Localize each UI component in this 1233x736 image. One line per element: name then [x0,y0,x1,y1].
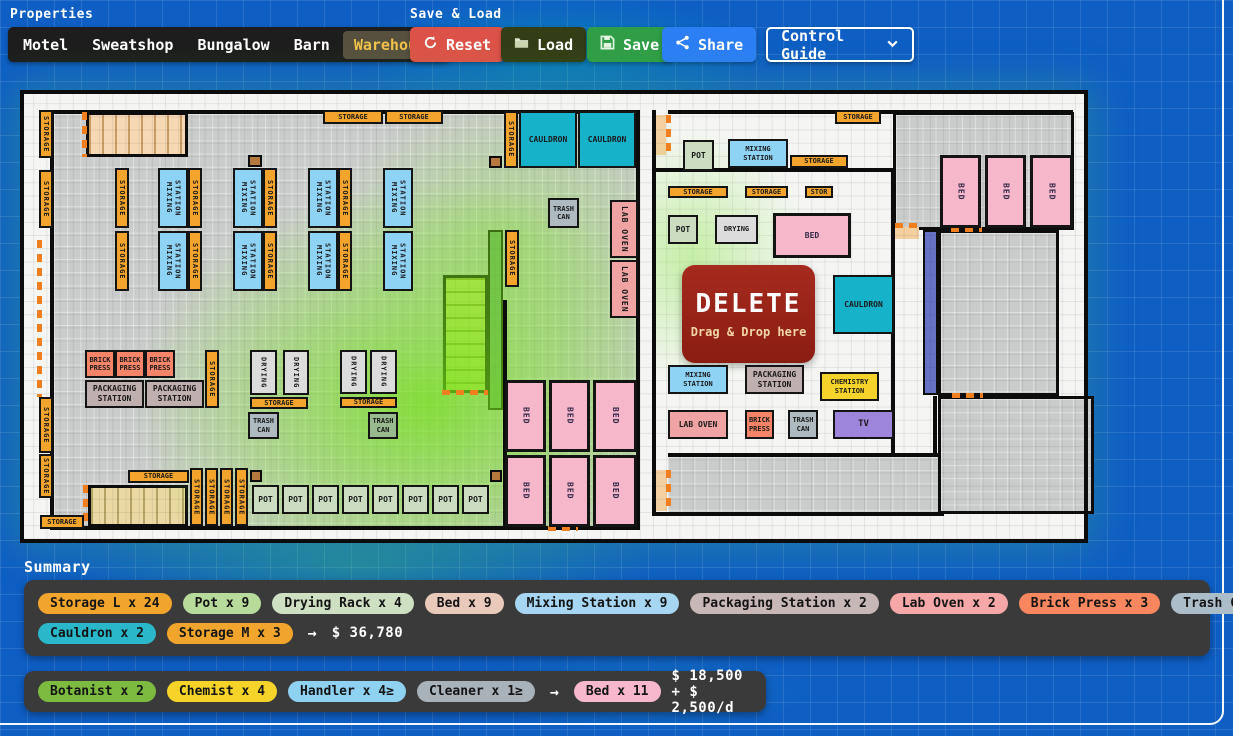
summary-badge: Botanist x 2 [38,681,156,702]
total-cost: $ 36,780 [332,625,403,641]
item-label: STORAGE [42,407,50,444]
share-button[interactable]: Share [662,27,756,62]
item-label: STORAGE [47,518,77,526]
item-label: STORAGE [42,116,50,153]
item-label: POT [676,225,690,235]
bed-item[interactable]: BED [773,213,851,258]
storage-item[interactable]: STORAGE [250,397,308,409]
pot-item[interactable]: POT [462,485,489,514]
item-label: LAB OVEN [619,266,629,313]
door-marker [82,112,87,157]
item-label: BED [565,407,575,424]
item-label: BRICK PRESS [749,416,770,433]
storage-item[interactable]: STORAGE [235,468,248,526]
summary-badge: Pot x 9 [183,593,262,614]
summary-badge: Brick Press x 3 [1019,593,1160,614]
item-label: DRYING [259,357,267,388]
bed-item[interactable]: BED [505,380,546,452]
item-label: MIXING STATION [315,180,332,217]
summary-badge: Mixing Station x 9 [515,593,680,614]
divider-strip [488,230,503,410]
storage-item[interactable]: STORAGE [745,186,788,198]
bed-item[interactable]: BED [505,455,546,527]
item-label: STORAGE [191,243,199,280]
door-marker [895,223,919,228]
item-label: STORAGE [508,240,516,277]
item-label: CAULDRON [588,135,627,145]
mixing-station-item[interactable]: MIXING STATION [308,231,338,291]
summary-badge: Lab Oven x 2 [890,593,1008,614]
delete-zone-subtitle: Drag & Drop here [691,325,807,339]
tab-motel[interactable]: Motel [12,31,79,59]
trash-can-item[interactable]: TRASH CAN [368,412,398,439]
item-label: BED [610,407,620,424]
brick-press-item[interactable]: BRICK PRESS [745,410,774,439]
item-label: PACKAGING STATION [93,384,136,403]
room-floor [938,230,1059,396]
save-label: Save [623,36,659,54]
item-label: MIXING STATION [315,243,332,280]
item-label: POT [408,495,422,505]
item-label: STORAGE [354,398,384,406]
load-button[interactable]: Load [501,27,586,62]
bed-item[interactable]: BED [549,455,590,527]
pot-item[interactable]: POT [312,485,339,514]
item-label: STORAGE [42,458,50,495]
item-label: MIXING STATION [390,243,407,280]
item-label: MIXING STATION [240,180,257,217]
door-marker [666,470,671,511]
storage-item[interactable]: STORAGE [115,231,129,291]
item-label: STORAGE [208,361,216,398]
stairs [88,485,188,527]
crate [490,470,502,482]
item-label: CAULDRON [844,300,883,310]
property-tabs: MotelSweatshopBungalowBarnWarehouse [8,27,450,62]
mixing-station-item[interactable]: MIXING STATION [728,139,788,168]
item-label: LAB OVEN [619,206,629,253]
item-label: BRICK PRESS [89,356,110,373]
bed-item[interactable]: BED [1030,155,1073,228]
storage-item[interactable]: STORAGE [188,168,202,228]
item-label: BRICK PRESS [149,356,170,373]
storage-item[interactable]: STORAGE [505,230,519,287]
item-label: STORAGE [237,479,245,516]
delete-drop-zone[interactable]: DELETE Drag & Drop here [682,265,815,363]
bed-item[interactable]: BED [985,155,1026,228]
item-label: POT [438,495,452,505]
item-label: BED [956,183,966,200]
save-button[interactable]: Save [587,27,672,62]
item-label: TRASH CAN [553,205,574,222]
item-label: POT [468,495,482,505]
floor-plan[interactable]: DELETE Drag & Drop here STORAGESTORAGEST… [20,90,1088,543]
storage-item[interactable]: STORAGE [220,468,233,526]
storage-item[interactable]: STORAGE [338,231,352,291]
summary-staff-row: Botanist x 2Chemist x 4Handler x 4≥Clean… [38,668,752,716]
drying-rack-item[interactable]: DRYING [283,350,309,395]
storage-item[interactable]: STORAGE [263,168,277,228]
mixing-station-item[interactable]: MIXING STATION [668,365,728,394]
crate [489,156,502,168]
item-label: STORAGE [341,180,349,217]
tab-sweatshop[interactable]: Sweatshop [81,31,184,59]
storage-item[interactable]: STORAGE [340,397,397,408]
door-marker [37,240,42,397]
pot-item[interactable]: POT [282,485,309,514]
tab-bungalow[interactable]: Bungalow [186,31,280,59]
item-label: STORAGE [222,479,230,516]
storage-item[interactable]: STORAGE [39,454,53,498]
item-label: DRYING [724,225,749,233]
chevron-down-icon [886,36,899,54]
pot-item[interactable]: POT [402,485,429,514]
bed-item[interactable]: BED [549,380,590,452]
item-label: STORAGE [399,113,429,121]
item-label: STORAGE [338,113,368,121]
mixing-station-item[interactable]: MIXING STATION [158,231,188,291]
item-label: DRYING [349,356,357,387]
drying-rack-item[interactable]: DRYING [715,215,758,244]
item-label: STORAGE [266,243,274,280]
trash-can-item[interactable]: TRASH CAN [548,198,579,228]
app-root: Properties Save & Load MotelSweatshopBun… [0,0,1233,736]
arrow-icon: → [304,624,321,642]
item-label: TRASH CAN [792,416,813,433]
save-icon [600,35,615,54]
item-label: BRICK PRESS [119,356,140,373]
storage-item[interactable]: STORAGE [39,110,53,158]
item-label: STORAGE [752,188,782,196]
bed-item[interactable]: BED [593,380,637,452]
item-label: POT [691,151,705,161]
storage-item[interactable]: STORAGE [338,168,352,228]
trash-can-item[interactable]: TRASH CAN [788,410,818,439]
storage-item[interactable]: STORAGE [40,515,84,529]
load-label: Load [537,36,573,54]
wall [933,396,937,457]
item-label: CHEMISTRY STATION [831,378,869,395]
summary-badge: Storage L x 24 [38,593,172,614]
item-label: BED [805,231,819,241]
storage-item[interactable]: STORAGE [205,350,219,408]
reset-label: Reset [446,36,491,54]
cauldron-item[interactable]: CAULDRON [833,275,894,334]
item-label: LAB OVEN [679,420,718,430]
storage-item[interactable]: STORAGE [385,110,443,124]
storage-item[interactable]: STORAGE [188,231,202,291]
summary-items-panel: Storage L x 24Pot x 9Drying Rack x 4Bed … [24,580,1210,656]
item-label: POT [378,495,392,505]
summary-badge: Chemist x 4 [167,681,277,702]
item-label: TRASH CAN [372,417,393,434]
door-marker [442,390,488,395]
crate [250,470,262,482]
item-label: STOR [811,188,828,196]
storage-item[interactable]: STORAGE [835,110,881,124]
summary-badge: Storage M x 3 [167,623,293,644]
pot-item[interactable]: POT [342,485,369,514]
divider-strip [923,230,938,395]
pot-item[interactable]: POT [372,485,399,514]
storage-item[interactable]: STORAGE [115,168,129,228]
drying-rack-item[interactable]: DRYING [250,350,277,395]
storage-item[interactable]: STORAGE [205,468,218,526]
drying-rack-item[interactable]: DRYING [340,350,367,394]
bed-item[interactable]: BED [593,455,637,527]
wall [652,512,944,516]
item-label: STORAGE [843,113,873,121]
share-label: Share [698,36,743,54]
mixing-station-item[interactable]: MIXING STATION [233,231,263,291]
reset-icon [423,35,438,54]
save-load-label: Save & Load [410,7,502,22]
summary-badge: Bed x 9 [425,593,504,614]
door-marker [952,393,983,398]
control-guide-dropdown[interactable]: Control Guide [766,27,914,62]
item-label: STORAGE [118,180,126,217]
item-label: STORAGE [144,472,174,480]
packaging-station-item[interactable]: PACKAGING STATION [85,380,144,408]
item-label: CAULDRON [529,135,568,145]
item-label: DRYING [292,357,300,388]
pot-item[interactable]: POT [668,215,698,244]
item-label: STORAGE [683,188,713,196]
pot-item[interactable]: POT [432,485,459,514]
storage-item[interactable]: STORAGE [504,111,518,168]
folder-icon [514,35,529,54]
door-marker [666,115,671,155]
brick-press-item[interactable]: BRICK PRESS [115,350,145,378]
item-label: STORAGE [118,243,126,280]
item-label: BED [565,482,575,499]
item-label: MIXING STATION [165,243,182,280]
tab-barn[interactable]: Barn [283,31,341,59]
summary-items-row1: Storage L x 24Pot x 9Drying Rack x 4Bed … [38,593,1196,614]
storage-item[interactable]: STORAGE [128,470,189,483]
cauldron-item[interactable]: CAULDRON [519,111,577,168]
item-label: TV [858,419,869,430]
storage-item[interactable]: STORAGE [39,397,53,453]
summary-badge: Trash Can x 3 [1171,593,1233,614]
delete-zone-title: DELETE [696,289,802,319]
summary-title: Summary [24,558,91,576]
lab-oven-item[interactable]: LAB OVEN [610,260,638,318]
item-label: STORAGE [264,399,294,407]
summary-staff-panel: Botanist x 2Chemist x 4Handler x 4≥Clean… [24,671,766,712]
share-icon [675,35,690,54]
mixing-station-item[interactable]: MIXING STATION [233,168,263,228]
mixing-station-item[interactable]: MIXING STATION [383,168,413,228]
item-label: DRYING [379,356,387,387]
staff-cost: $ 18,500 + $ 2,500/d [672,668,752,716]
storage-item[interactable]: STORAGE [190,468,203,526]
storage-item[interactable]: STORAGE [263,231,277,291]
packaging-station-item[interactable]: PACKAGING STATION [745,365,804,394]
reset-button[interactable]: Reset [410,27,504,62]
item-label: MIXING STATION [240,243,257,280]
packaging-station-item[interactable]: PACKAGING STATION [145,380,204,408]
tv-item[interactable]: TV [833,410,894,439]
lab-oven-item[interactable]: LAB OVEN [610,200,638,258]
mixing-station-item[interactable]: MIXING STATION [158,168,188,228]
summary-badge: Cauldron x 2 [38,623,156,644]
stairs [86,112,188,157]
room-floor [938,396,1094,514]
item-label: MIXING STATION [743,145,773,162]
item-label: BED [521,482,531,499]
item-label: TRASH CAN [253,417,274,434]
lab-oven-item[interactable]: LAB OVEN [668,410,728,439]
arrow-icon: → [546,683,563,701]
storage-item[interactable]: STORAGE [790,155,848,168]
item-label: MIXING STATION [165,180,182,217]
brick-press-item[interactable]: BRICK PRESS [85,350,115,378]
wall [668,453,938,457]
item-label: STORAGE [266,180,274,217]
item-label: POT [348,495,362,505]
item-label: MIXING STATION [683,371,713,388]
summary-badge: Bed x 11 [574,681,661,702]
control-guide-label: Control Guide [781,27,878,63]
summary-badge: Handler x 4≥ [288,681,406,702]
item-label: BED [1047,183,1057,200]
pot-item[interactable]: POT [252,485,279,514]
item-label: POT [288,495,302,505]
item-label: BED [610,482,620,499]
stairs [443,275,488,393]
item-label: MIXING STATION [390,180,407,217]
storage-item[interactable]: STORAGE [323,110,383,124]
bed-item[interactable]: BED [940,155,981,228]
item-label: BED [521,407,531,424]
cauldron-item[interactable]: CAULDRON [578,111,636,168]
storage-item[interactable]: STOR [805,186,833,198]
summary-badge: Cleaner x 1≥ [417,681,535,702]
drying-rack-item[interactable]: DRYING [370,350,397,394]
item-label: STORAGE [191,180,199,217]
door-mat [895,227,919,239]
mixing-station-item[interactable]: MIXING STATION [308,168,338,228]
item-label: STORAGE [192,479,200,516]
item-label: STORAGE [507,121,515,158]
properties-label: Properties [10,7,93,22]
pot-item[interactable]: POT [683,140,714,171]
crate [248,155,262,167]
item-label: BED [1001,183,1011,200]
summary-items-row2: Cauldron x 2Storage M x 3 → $ 36,780 [38,623,1196,644]
item-label: PACKAGING STATION [153,384,196,403]
item-label: STORAGE [42,181,50,218]
item-label: STORAGE [804,157,834,165]
summary-badge: Packaging Station x 2 [690,593,878,614]
chemistry-station-item[interactable]: CHEMISTRY STATION [820,372,879,401]
trash-can-item[interactable]: TRASH CAN [248,412,279,439]
item-label: PACKAGING STATION [753,370,796,389]
storage-item[interactable]: STORAGE [39,170,53,228]
item-label: POT [318,495,332,505]
brick-press-item[interactable]: BRICK PRESS [145,350,175,378]
room-floor [668,457,942,513]
item-label: STORAGE [207,479,215,516]
item-label: POT [258,495,272,505]
summary-badge: Drying Rack x 4 [272,593,413,614]
item-label: STORAGE [341,243,349,280]
mixing-station-item[interactable]: MIXING STATION [383,231,413,291]
storage-item[interactable]: STORAGE [668,186,728,198]
